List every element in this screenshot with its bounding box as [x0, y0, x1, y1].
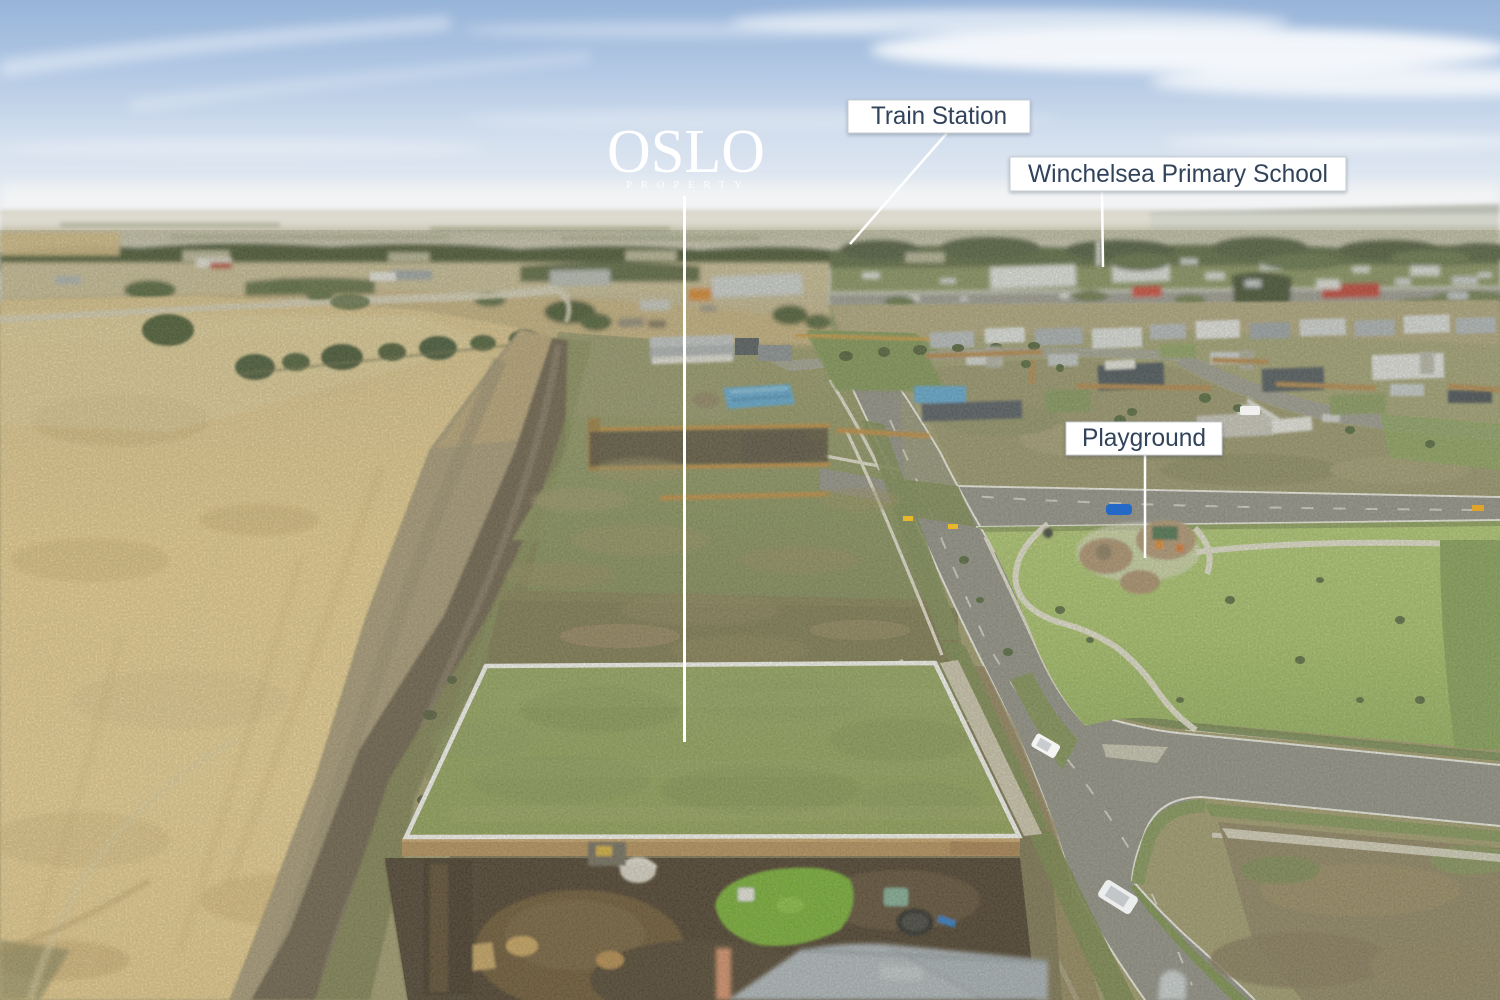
svg-text:Winchelsea Primary School: Winchelsea Primary School: [1028, 160, 1328, 188]
svg-text:Train Station: Train Station: [871, 102, 1007, 130]
svg-text:Playground: Playground: [1082, 424, 1206, 452]
svg-text:OSLO: OSLO: [607, 118, 765, 186]
